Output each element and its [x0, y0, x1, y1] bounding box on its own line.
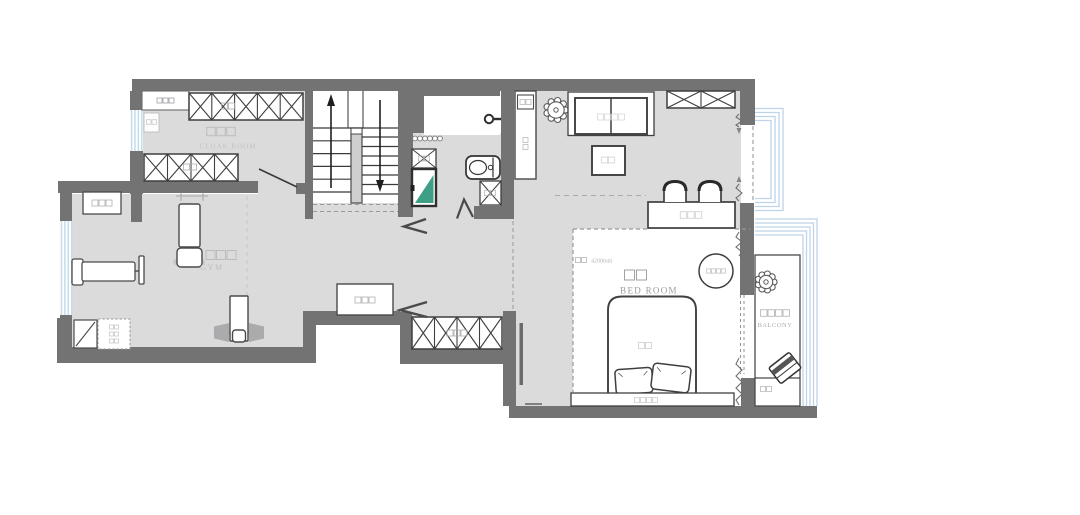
svg-text:CLOAK ROOM: CLOAK ROOM — [200, 143, 257, 151]
svg-text:GYM: GYM — [200, 263, 223, 272]
svg-text:BED ROOM: BED ROOM — [620, 286, 678, 296]
svg-text:4200mm: 4200mm — [591, 259, 613, 265]
svg-text:BALCONY: BALCONY — [758, 322, 793, 329]
